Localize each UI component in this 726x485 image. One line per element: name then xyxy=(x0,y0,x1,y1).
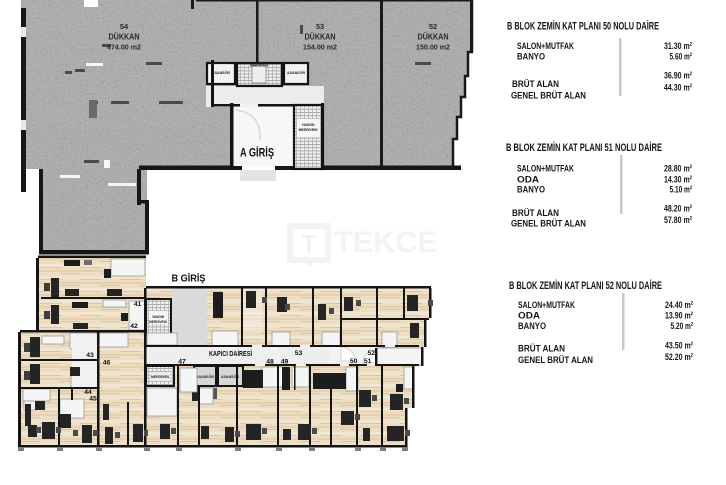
svg-text:41: 41 xyxy=(134,301,142,308)
svg-text:28.80 m²: 28.80 m² xyxy=(664,163,692,174)
svg-text:SALON+MUTFAK: SALON+MUTFAK xyxy=(518,299,575,310)
svg-text:BRÜT ALAN: BRÜT ALAN xyxy=(518,343,565,354)
svg-text:SALON+MUTFAK: SALON+MUTFAK xyxy=(517,40,574,51)
svg-text:54: 54 xyxy=(120,22,129,31)
svg-text:150.00 m2: 150.00 m2 xyxy=(416,43,450,52)
svg-text:BANYO: BANYO xyxy=(518,320,546,331)
svg-text:ASANSÖR: ASANSÖR xyxy=(287,70,305,75)
svg-text:BANYO: BANYO xyxy=(517,184,545,195)
svg-text:52: 52 xyxy=(429,22,437,31)
svg-text:47: 47 xyxy=(178,359,186,366)
svg-text:MERDİVEN: MERDİVEN xyxy=(250,64,268,68)
svg-text:DÜKKAN: DÜKKAN xyxy=(109,33,140,42)
svg-text:B BLOK ZEMİN KAT PLANI 50 NOLU: B BLOK ZEMİN KAT PLANI 50 NOLU DAİRE xyxy=(507,20,659,33)
svg-text:B GİRİŞ: B GİRİŞ xyxy=(172,272,206,285)
svg-text:GENEL BRÜT ALAN: GENEL BRÜT ALAN xyxy=(511,90,586,101)
svg-text:MERDİVEN: MERDİVEN xyxy=(151,375,169,379)
svg-text:49: 49 xyxy=(281,359,289,366)
svg-text:ODA: ODA xyxy=(518,310,540,321)
svg-text:50: 50 xyxy=(350,358,358,365)
svg-text:154.00 m2: 154.00 m2 xyxy=(303,43,337,52)
svg-text:B BLOK ZEMİN KAT PLANI 51 NOL: B BLOK ZEMİN KAT PLANI 51 NOLU DAİRE xyxy=(506,141,662,154)
svg-text:48.20 m²: 48.20 m² xyxy=(664,203,692,214)
svg-text:YANGIN: YANGIN xyxy=(302,123,315,127)
svg-text:46: 46 xyxy=(103,360,111,367)
svg-text:YANGIN: YANGIN xyxy=(152,315,165,319)
svg-text:52: 52 xyxy=(368,350,376,357)
svg-text:KAPICI DAİRESİ: KAPICI DAİRESİ xyxy=(209,349,252,358)
svg-text:GENEL BRÜT ALAN: GENEL BRÜT ALAN xyxy=(518,354,593,365)
svg-text:DÜKKAN: DÜKKAN xyxy=(305,33,336,42)
svg-text:TEKCE: TEKCE xyxy=(334,226,438,259)
svg-text:DÜKKAN: DÜKKAN xyxy=(418,33,449,42)
svg-text:51: 51 xyxy=(364,358,372,365)
svg-text:ASANSÖR: ASANSÖR xyxy=(196,374,214,379)
svg-text:474.00 m2: 474.00 m2 xyxy=(107,43,141,52)
svg-text:SALON+MUTFAK: SALON+MUTFAK xyxy=(517,163,574,174)
svg-text:13.90 m²: 13.90 m² xyxy=(665,310,693,321)
svg-text:BRÜT ALAN: BRÜT ALAN xyxy=(512,78,559,89)
svg-text:5.10 m²: 5.10 m² xyxy=(670,184,693,195)
svg-text:48: 48 xyxy=(266,359,274,366)
svg-text:53: 53 xyxy=(316,22,324,31)
svg-text:A GİRİŞ: A GİRİŞ xyxy=(240,147,274,160)
svg-text:53: 53 xyxy=(295,350,303,357)
svg-text:5.60 m²: 5.60 m² xyxy=(670,51,693,62)
svg-text:44.30 m²: 44.30 m² xyxy=(664,82,692,93)
svg-text:24.40 m²: 24.40 m² xyxy=(665,299,693,310)
svg-text:5.20 m²: 5.20 m² xyxy=(671,320,694,331)
svg-text:31.30 m²: 31.30 m² xyxy=(664,40,692,51)
svg-text:52.20 m²: 52.20 m² xyxy=(665,351,693,362)
svg-text:GENEL BRÜT ALAN: GENEL BRÜT ALAN xyxy=(511,218,586,229)
svg-text:T: T xyxy=(301,229,317,259)
svg-text:BRÜT ALAN: BRÜT ALAN xyxy=(512,207,559,218)
svg-text:42: 42 xyxy=(130,323,138,330)
svg-text:ASANSÖR: ASANSÖR xyxy=(212,70,230,75)
svg-text:MERDİVENİ: MERDİVENİ xyxy=(149,320,167,324)
svg-text:MERDİVENİ: MERDİVENİ xyxy=(299,128,318,132)
svg-text:57.80 m²: 57.80 m² xyxy=(664,214,692,225)
svg-text:BANYO: BANYO xyxy=(517,51,545,62)
svg-text:36.90 m²: 36.90 m² xyxy=(664,70,692,81)
svg-text:43.50 m²: 43.50 m² xyxy=(665,340,693,351)
svg-text:B BLOK ZEMİN KAT PLANI 52 NOLU: B BLOK ZEMİN KAT PLANI 52 NOLU DAİRE xyxy=(509,279,662,292)
svg-text:43: 43 xyxy=(86,352,94,359)
svg-text:45: 45 xyxy=(89,396,97,403)
